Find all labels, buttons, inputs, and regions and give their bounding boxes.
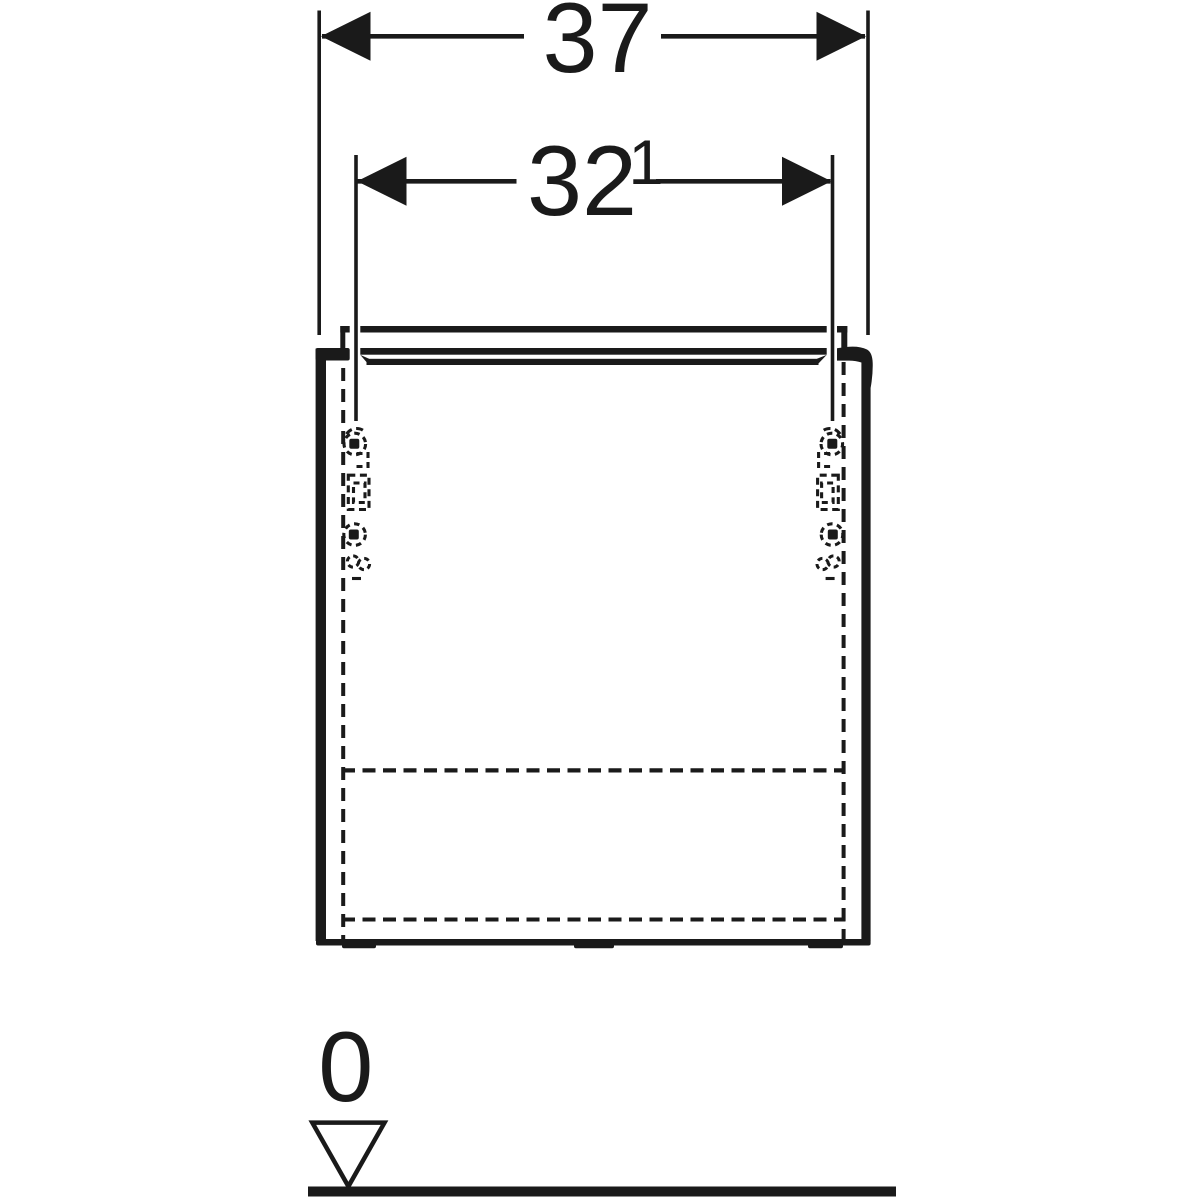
svg-text:32: 32 bbox=[527, 125, 637, 236]
svg-text:37: 37 bbox=[542, 0, 652, 93]
svg-text:0: 0 bbox=[318, 1011, 373, 1122]
svg-text:1: 1 bbox=[628, 128, 663, 198]
